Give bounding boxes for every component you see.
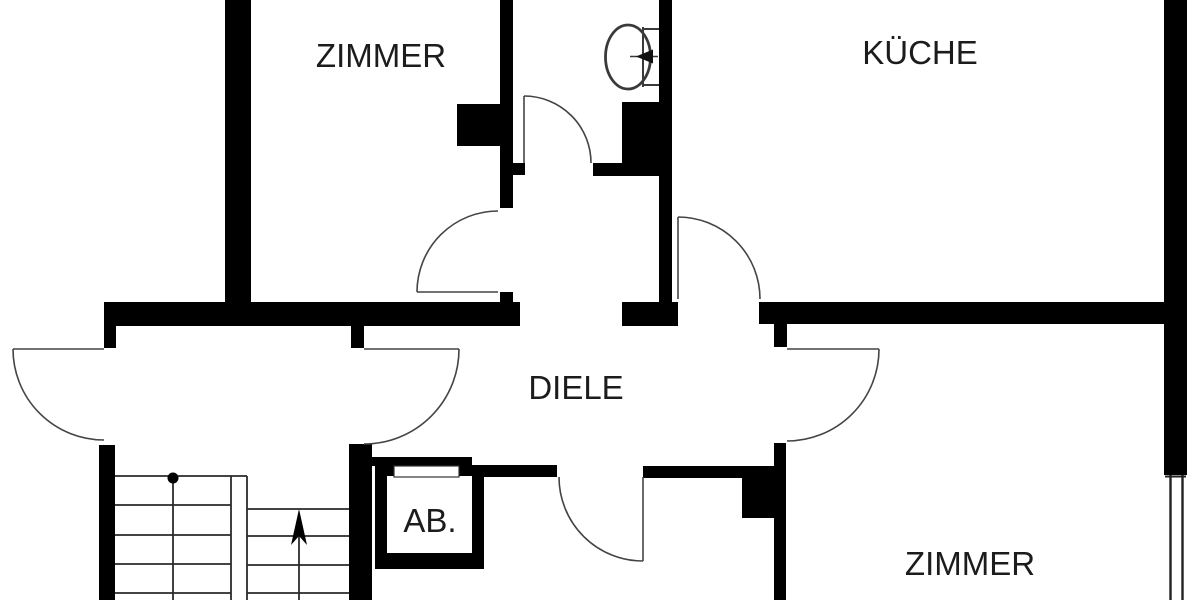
svg-text:AB.: AB. bbox=[403, 502, 456, 539]
svg-text:ZIMMER: ZIMMER bbox=[905, 545, 1035, 582]
svg-text:ZIMMER: ZIMMER bbox=[316, 37, 446, 74]
svg-text:KÜCHE: KÜCHE bbox=[862, 34, 978, 71]
svg-text:DIELE: DIELE bbox=[528, 369, 623, 406]
